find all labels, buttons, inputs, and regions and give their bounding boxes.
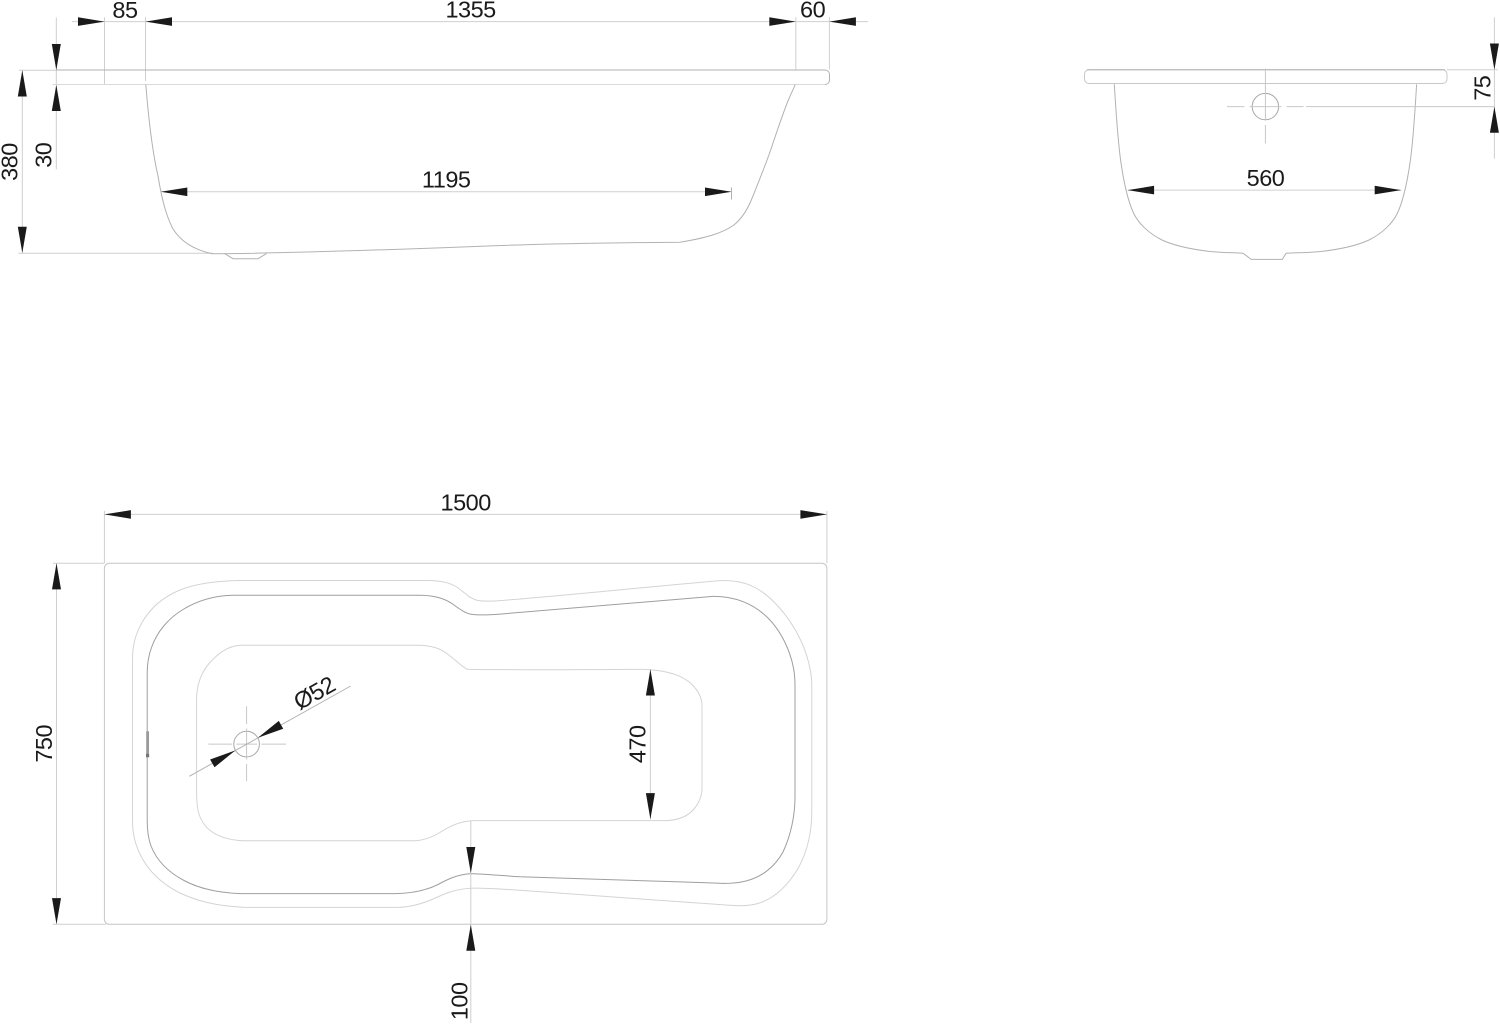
svg-text:750: 750 bbox=[31, 725, 57, 763]
svg-text:560: 560 bbox=[1247, 165, 1285, 191]
svg-text:75: 75 bbox=[1469, 75, 1495, 101]
svg-text:Ø52: Ø52 bbox=[289, 671, 339, 715]
svg-text:85: 85 bbox=[112, 0, 138, 23]
svg-text:380: 380 bbox=[0, 143, 22, 181]
svg-text:30: 30 bbox=[31, 142, 57, 168]
svg-text:1195: 1195 bbox=[422, 166, 471, 192]
svg-text:60: 60 bbox=[800, 0, 826, 23]
svg-text:100: 100 bbox=[447, 982, 473, 1020]
svg-text:1355: 1355 bbox=[445, 0, 496, 23]
svg-text:470: 470 bbox=[625, 725, 651, 763]
svg-text:1500: 1500 bbox=[441, 489, 492, 515]
